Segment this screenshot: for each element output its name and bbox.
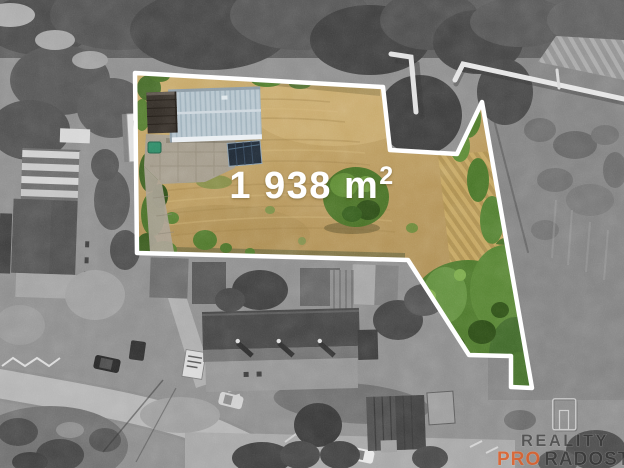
watermark-line1: REALITY xyxy=(521,432,609,450)
area-value: 1 938 m xyxy=(229,165,379,207)
watermark-line2: PRORADOST xyxy=(497,449,624,468)
area-label: 1 938 m2 xyxy=(229,162,394,207)
aerial-photo: 1 938 m2 REALITY PRORADOST xyxy=(0,0,624,468)
watermark-accent: PRO xyxy=(497,449,541,468)
watermark-rest: RADOST xyxy=(544,449,624,468)
area-superscript: 2 xyxy=(379,162,394,190)
photo-grain-fine xyxy=(0,0,624,468)
aerial-photo-canvas: 1 938 m2 REALITY PRORADOST xyxy=(0,0,624,468)
